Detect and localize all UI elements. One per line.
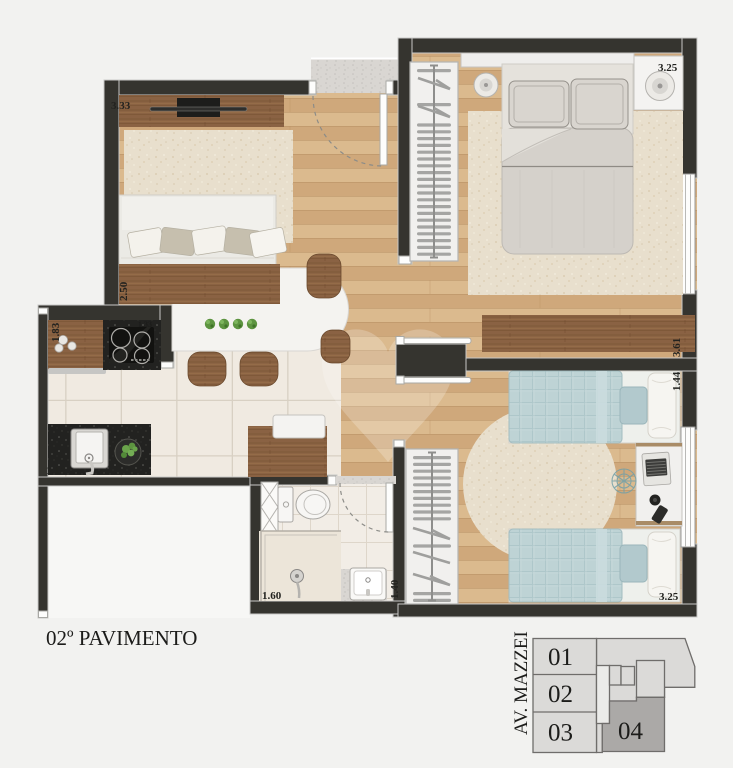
svg-text:03: 03 (548, 720, 573, 747)
svg-text:1.40: 1.40 (389, 579, 401, 599)
svg-text:04: 04 (618, 718, 644, 745)
svg-text:1.60: 1.60 (262, 590, 282, 602)
svg-text:1.33: 1.33 (138, 320, 152, 329)
svg-text:1.44: 1.44 (671, 371, 683, 391)
svg-text:1.15: 1.15 (46, 465, 66, 477)
svg-text:1.83: 1.83 (50, 322, 62, 342)
svg-text:2.50: 2.50 (118, 281, 130, 301)
svg-text:02: 02 (548, 681, 573, 708)
svg-text:AV. MAZZEI: AV. MAZZEI (511, 631, 532, 735)
svg-text:3.61: 3.61 (671, 338, 683, 357)
svg-text:01: 01 (548, 644, 573, 671)
svg-text:3.25: 3.25 (659, 591, 679, 603)
svg-text:3.25: 3.25 (658, 62, 678, 74)
svg-text:3.33: 3.33 (111, 100, 131, 112)
svg-text:02º PAVIMENTO: 02º PAVIMENTO (46, 626, 197, 650)
